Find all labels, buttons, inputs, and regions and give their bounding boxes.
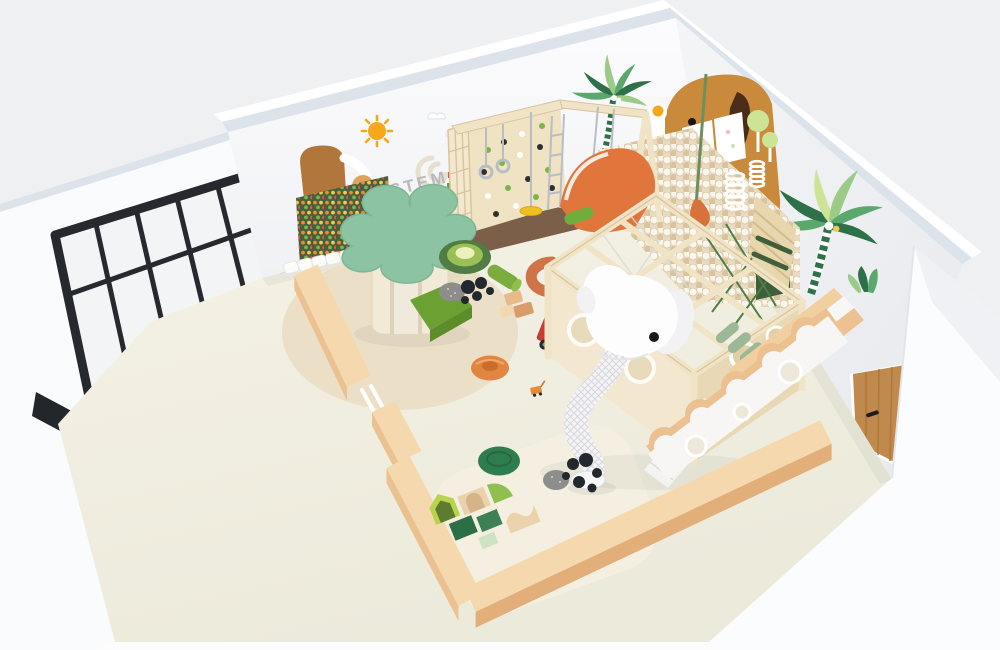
green-pouf [478,447,520,476]
elephant-eye [649,332,659,342]
rock-pouf [439,283,465,302]
ring-seat [439,240,491,274]
donut-pouf [471,356,509,381]
playground-render: STEM [0,0,1000,650]
sun-icon [362,116,392,146]
front-wall-cut [96,642,738,650]
scene-canvas: STEM [0,0,1000,650]
